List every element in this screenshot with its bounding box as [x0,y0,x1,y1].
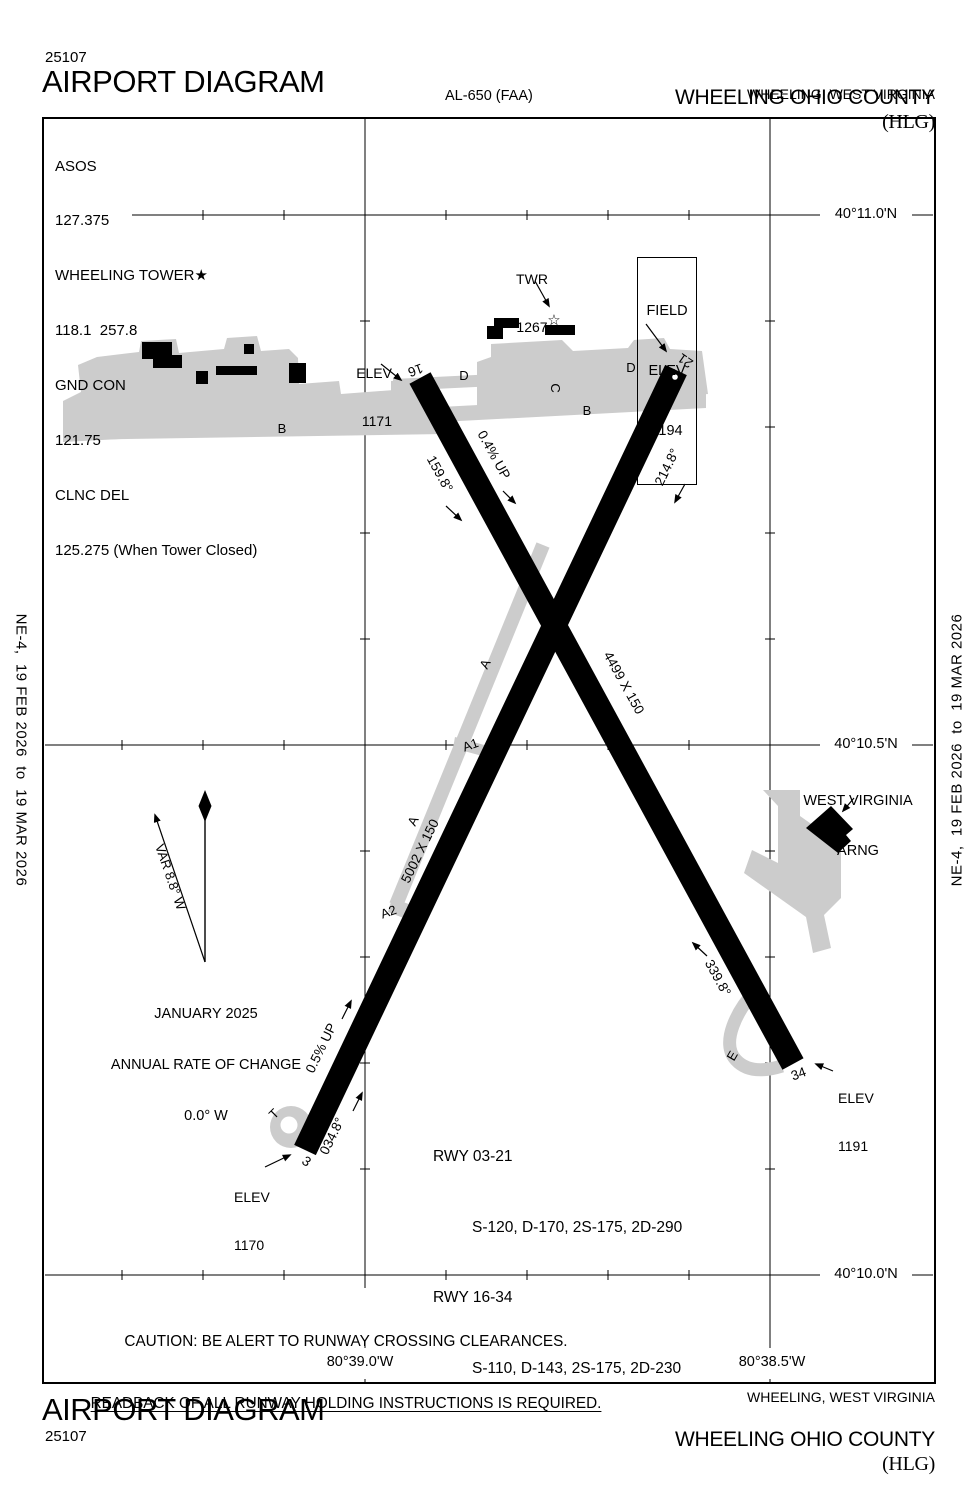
variation-rate-label: ANNUAL RATE OF CHANGE [111,1057,301,1074]
latitude-label-40-10-0: 40°10.0'N [830,1266,901,1283]
elev-label: ELEV [348,365,392,381]
elev-rwy16-callout: ELEV 1171 [348,333,392,462]
field-elevation-box: FIELD ELEV 1194 [637,257,697,485]
elev-value: 1191 [838,1138,874,1154]
caution-note: CAUTION: BE ALERT TO RUNWAY CROSSING CLE… [91,1291,602,1455]
variation-rate-value: 0.0° W [111,1108,301,1125]
longitude-label-80-38-5: 80°38.5'W [739,1354,806,1371]
airport-city-bottom: WHEELING, WEST VIRGINIA [747,1389,935,1405]
runway-03-21-name: RWY 03-21 [433,1145,682,1169]
field-elev-value: 1194 [638,421,696,441]
arng-line2: ARNG [803,843,912,860]
chart-code-bottom: 25107 [45,1428,87,1445]
tower-star-icon: ☆ [547,312,560,329]
airport-name-text: WHEELING OHIO COUNTY [675,1428,935,1451]
tower-callout: TWR 1267 [516,239,548,368]
true-north-arrowhead [199,790,212,822]
asos-frequency: 127.375 [55,212,257,230]
hdg-159-arrow [446,506,461,520]
page-title-top: AIRPORT DIAGRAM [42,64,324,100]
taxiway-b-label: B [583,403,592,418]
ground-label: GND CON [55,377,257,395]
arng-line1: WEST VIRGINIA [803,793,912,810]
hdg-034-arrow [353,1093,362,1111]
arng-callout: WEST VIRGINIA ARNG [803,760,912,893]
tower-frequency: 118.1 257.8 [55,322,257,340]
tower-label: WHEELING TOWER★ [55,267,257,285]
taxiway-b-label: B [278,421,287,436]
airport-icao-text: (HLG) [882,1453,935,1475]
runway-03-21-strength: S-120, D-170, 2S-175, 2D-290 [472,1216,682,1240]
variation-note: JANUARY 2025 ANNUAL RATE OF CHANGE 0.0° … [111,972,301,1159]
elev-rwy34-callout: ELEV 1191 [838,1058,874,1187]
taxiway-d-label: D [626,360,635,375]
runways [305,370,793,1150]
page-title-bottom: AIRPORT DIAGRAM [42,1392,324,1428]
slope-04-arrow [503,491,515,503]
tower-elevation: 1267 [516,319,548,335]
clearance-frequency: 125.275 (When Tower Closed) [55,542,257,560]
elev-value: 1171 [348,413,392,429]
slope-05-arrow [342,1001,351,1019]
runway-3-number: 3 [299,1153,314,1170]
procedure-id: AL-650 (FAA) [445,88,533,105]
elev-label: ELEV [838,1090,874,1106]
airport-city-top: WHEELING, WEST VIRGINIA [747,86,935,102]
taxiway-c-label: C [548,383,563,392]
runway-34-number: 34 [789,1064,809,1083]
building [289,363,306,383]
airport-icao-text: (HLG) [882,111,935,133]
clearance-label: CLNC DEL [55,487,257,505]
elev-value: 1170 [234,1237,270,1253]
compass-rose: VAR 8.8° W [152,790,211,962]
variation-label: VAR 8.8° W [152,842,189,912]
taxiway-d-label: D [459,368,468,383]
variation-date: JANUARY 2025 [111,1006,301,1023]
airport-diagram-page: ☆ VAR 8.8° W 16 21 3 3 [0,0,978,1500]
caution-line1: CAUTION: BE ALERT TO RUNWAY CROSSING CLE… [91,1332,602,1353]
airport-name-bottom: WHEELING OHIO COUNTY (HLG) [653,1404,935,1500]
field-elev-line1: FIELD [638,301,696,321]
elev-1191-arrow [816,1064,833,1071]
comm-frequencies-block: ASOS 127.375 WHEELING TOWER★ 118.1 257.8… [55,121,257,597]
field-elev-line2: ELEV [638,361,696,381]
ground-frequency: 121.75 [55,432,257,450]
airport-name-top: WHEELING OHIO COUNTY (HLG) [653,62,935,159]
margin-note-left: NE-4, 19 FEB 2026 to 19 MAR 2026 [12,614,29,887]
elev-rwy3-callout: ELEV 1170 [234,1157,270,1286]
latitude-label-40-10-5: 40°10.5'N [830,736,901,753]
latitude-label-40-11-0: 40°11.0'N [831,206,901,223]
elev-label: ELEV [234,1189,270,1205]
hdg-339-arrow [693,943,707,956]
tower-callout-label: TWR [516,271,548,287]
hdg-214-arrow [675,484,685,502]
asos-label: ASOS [55,158,257,176]
taxiway-a-label: A [404,814,421,829]
margin-note-right: NE-4, 19 FEB 2026 to 19 MAR 2026 [948,614,965,887]
